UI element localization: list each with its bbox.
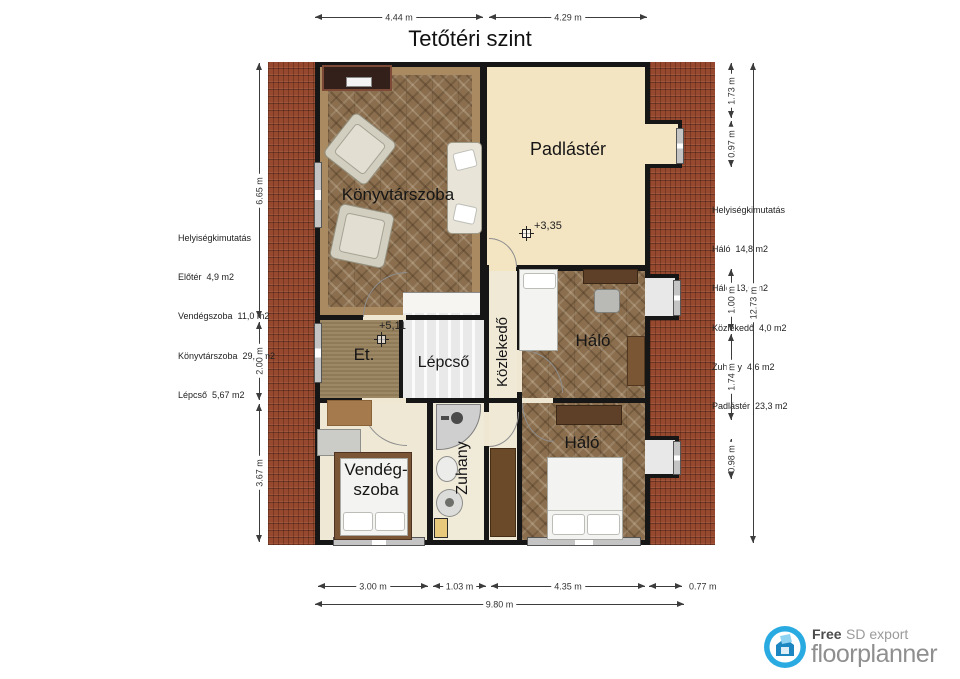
dim-right-2: 0.97 m <box>731 121 732 167</box>
dim-label: 1.03 m <box>443 582 477 593</box>
dim-right-total: 12.73 m <box>753 63 754 543</box>
dim-bottom-4: 0.77 m <box>649 586 682 587</box>
dim-label: 4.44 m <box>382 13 416 24</box>
dim-label: 3.00 m <box>356 582 390 593</box>
level-marker-square <box>377 335 386 344</box>
dim-left-3: 3.67 m <box>259 404 260 542</box>
window-bedroom-lower-bay <box>673 441 681 475</box>
legend-row: Előtér 4,9 m2 <box>178 271 275 284</box>
floorplanner-logo: Free SD export floorplanner <box>763 624 953 672</box>
label-stairs: Lépcső <box>403 354 484 372</box>
single-bed <box>519 269 558 351</box>
armchair-cushion <box>333 122 386 175</box>
label-guest-line1: Vendég- <box>330 460 422 480</box>
logo-brand-text: floorplanner <box>811 642 937 667</box>
label-library: Könyvtárszoba <box>327 185 469 205</box>
level-marker-attic <box>519 226 534 241</box>
dim-bottom-total: 9.80 m <box>315 604 684 605</box>
dim-label: 4.35 m <box>551 582 585 593</box>
fireplace <box>322 65 392 91</box>
dim-left-2: 2.00 m <box>259 322 260 400</box>
floorplanner-logo-icon <box>763 625 807 669</box>
dim-top-right: 4.29 m <box>489 17 647 18</box>
sofa-pillow <box>452 203 477 225</box>
bed-pillow <box>375 512 405 531</box>
double-bed <box>547 457 623 540</box>
legend-row: Háló 14,8 m2 <box>712 243 788 256</box>
legend-title: Helyiségkimutatás <box>178 232 275 245</box>
dim-bottom-2: 1.03 m <box>433 586 486 587</box>
window-entry-west <box>314 323 322 383</box>
toilet-drain <box>445 498 454 507</box>
dim-label: 6.65 m <box>255 174 266 208</box>
legend-row: Zuhany 4,6 m2 <box>712 361 788 374</box>
dresser <box>627 336 645 386</box>
label-shower: Zuhany <box>455 418 471 518</box>
label-guest-line2: szoba <box>330 480 422 500</box>
legend-row: Padlástér 23,3 m2 <box>712 400 788 413</box>
wall-hallway-left <box>484 266 489 540</box>
dim-top-left: 4.44 m <box>315 17 483 18</box>
dim-label: 4.29 m <box>551 13 585 24</box>
window-bedroom-upper-bay <box>673 280 681 316</box>
dim-label: 1.74 m <box>727 360 738 394</box>
label-bedroom-upper: Háló <box>560 331 626 351</box>
dim-label: 2.00 m <box>255 344 266 378</box>
bed-pillow <box>523 273 556 289</box>
dim-label: 3.67 m <box>255 456 266 490</box>
bed-pillow <box>587 514 620 535</box>
window-library-west <box>314 162 322 228</box>
level-text-attic: +3,35 <box>534 220 562 232</box>
dim-label: 1.00 m <box>727 283 738 317</box>
shower-valve <box>441 416 449 420</box>
dim-right-1: 1.73 m <box>731 63 732 118</box>
dim-label: 9.80 m <box>483 600 517 611</box>
bed-pillow <box>343 512 373 531</box>
level-marker-square <box>522 229 531 238</box>
label-entry: Et. <box>338 345 390 365</box>
dim-label: 12.73 m <box>749 284 760 323</box>
legend-row: Közlekedő 4,0 m2 <box>712 322 788 335</box>
armchair-cushion <box>338 212 385 259</box>
label-attic: Padlástér <box>498 139 638 160</box>
wardrobe <box>490 448 516 537</box>
dim-label: 1.73 m <box>727 74 738 108</box>
dim-right-4: 1.74 m <box>731 334 732 420</box>
bed-pillow <box>552 514 585 535</box>
label-guest: Vendég- szoba <box>330 460 422 499</box>
label-bedroom-lower: Háló <box>549 433 615 453</box>
window-attic-bay <box>676 128 684 164</box>
label-hallway: Közlekedő <box>494 302 510 402</box>
rug <box>327 400 372 426</box>
dresser <box>556 405 622 425</box>
dim-left-1: 6.65 m <box>259 63 260 318</box>
desk <box>583 269 638 284</box>
stairs-landing <box>403 292 480 313</box>
blanket-edge <box>548 510 622 511</box>
armchair <box>329 203 395 269</box>
level-text-entry: +5,11 <box>379 320 406 332</box>
dim-right-5: 0.98 m <box>731 439 732 479</box>
level-marker-entry <box>374 332 389 347</box>
dim-label: 0.98 m <box>727 442 738 476</box>
dim-label: 0.97 m <box>727 127 738 161</box>
room-attic <box>487 67 645 267</box>
desk-chair <box>594 289 620 313</box>
radiator <box>434 518 448 538</box>
wall-guest-shower <box>427 398 433 540</box>
fireplace-hearth <box>346 77 372 87</box>
sofa-pillow <box>452 149 478 172</box>
legend-title: Helyiségkimutatás <box>712 204 788 217</box>
page-title: Tetőtéri szint <box>270 26 670 52</box>
floorplan-export-page: Tetőtéri szint 4.44 m 4.29 m <box>0 0 960 679</box>
dim-bottom-3: 4.35 m <box>491 586 645 587</box>
dim-label: 0.77 m <box>686 582 720 593</box>
dim-bottom-1: 3.00 m <box>318 586 428 587</box>
dim-right-3: 1.00 m <box>731 269 732 331</box>
